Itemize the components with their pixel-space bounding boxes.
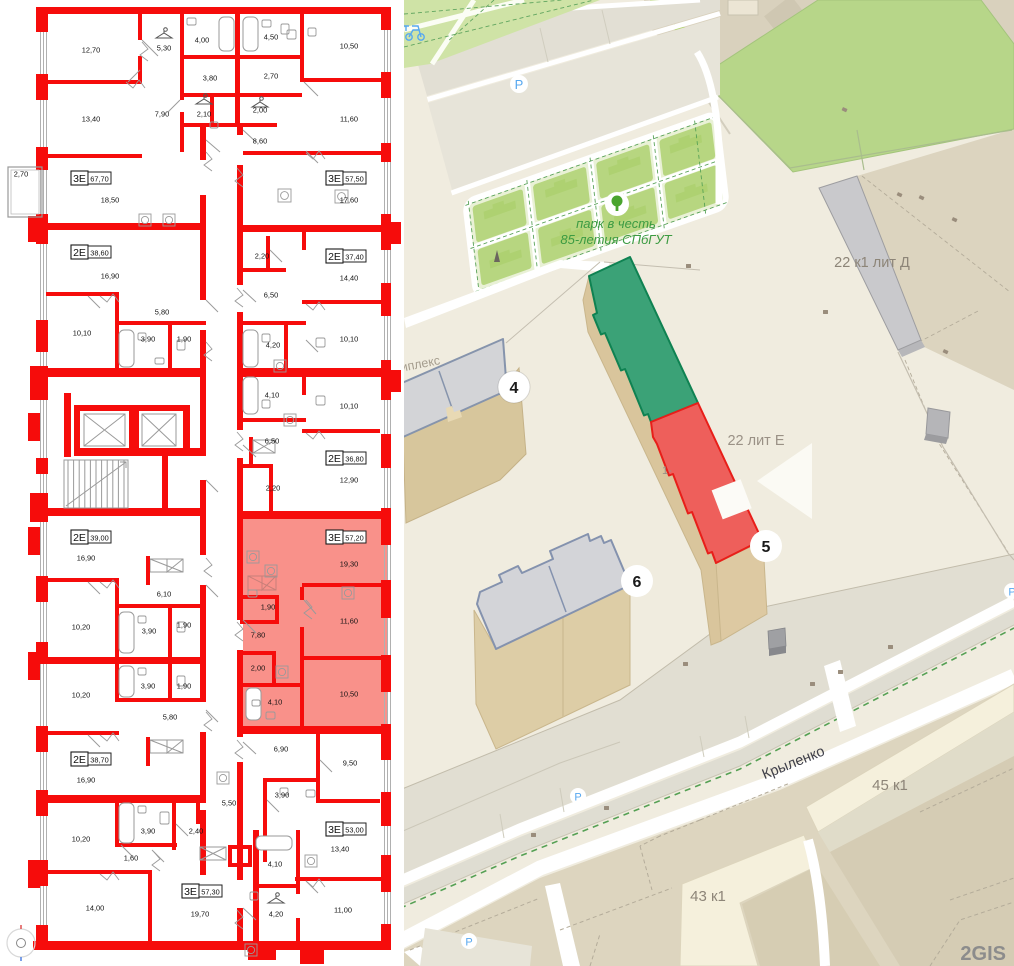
svg-text:10,10: 10,10	[340, 335, 359, 344]
svg-text:4,20: 4,20	[269, 910, 283, 919]
svg-text:11,60: 11,60	[340, 617, 358, 626]
svg-text:3,90: 3,90	[141, 335, 155, 344]
svg-text:12,90: 12,90	[340, 476, 359, 485]
svg-text:2E: 2E	[328, 251, 341, 263]
svg-text:10,20: 10,20	[72, 691, 91, 700]
svg-text:38,60: 38,60	[90, 249, 109, 258]
svg-text:6: 6	[633, 574, 642, 591]
svg-text:3E: 3E	[328, 532, 341, 544]
svg-text:85-летия СПбГУТ: 85-летия СПбГУТ	[560, 232, 672, 247]
svg-text:6,10: 6,10	[157, 590, 171, 599]
svg-text:4: 4	[510, 380, 519, 397]
svg-text:4,20: 4,20	[266, 341, 280, 350]
svg-text:57,20: 57,20	[345, 534, 364, 543]
svg-text:3,90: 3,90	[141, 827, 155, 836]
svg-text:13,40: 13,40	[82, 115, 101, 124]
svg-text:14,40: 14,40	[340, 274, 359, 283]
svg-text:10,50: 10,50	[340, 690, 359, 699]
svg-text:2E: 2E	[328, 453, 341, 465]
svg-text:17,60: 17,60	[340, 196, 359, 205]
svg-text:9,50: 9,50	[343, 759, 357, 768]
svg-text:3,90: 3,90	[142, 627, 156, 636]
svg-text:1,90: 1,90	[177, 335, 191, 344]
svg-text:2,70: 2,70	[14, 170, 28, 179]
svg-text:3,80: 3,80	[203, 74, 217, 83]
svg-text:5,80: 5,80	[163, 713, 177, 722]
svg-text:1,90: 1,90	[177, 621, 191, 630]
svg-text:4,10: 4,10	[268, 860, 282, 869]
svg-text:10,20: 10,20	[72, 623, 91, 632]
svg-text:6,90: 6,90	[274, 745, 288, 754]
svg-text:43 к1: 43 к1	[690, 888, 726, 905]
svg-text:57,30: 57,30	[201, 888, 220, 897]
svg-text:45 к1: 45 к1	[872, 777, 908, 794]
svg-text:19,30: 19,30	[340, 560, 359, 569]
svg-text:8,60: 8,60	[253, 137, 267, 146]
svg-text:5: 5	[762, 539, 771, 556]
svg-text:5,80: 5,80	[155, 308, 169, 317]
svg-text:16,90: 16,90	[101, 272, 120, 281]
svg-text:11,00: 11,00	[334, 906, 352, 915]
svg-text:3,90: 3,90	[275, 791, 289, 800]
svg-text:2E: 2E	[73, 247, 86, 259]
svg-text:1,90: 1,90	[177, 682, 191, 691]
svg-text:57,50: 57,50	[345, 175, 364, 184]
svg-text:1,90: 1,90	[261, 603, 275, 612]
svg-text:18,50: 18,50	[101, 196, 120, 205]
svg-text:2GIS: 2GIS	[960, 943, 1006, 965]
svg-text:2,20: 2,20	[266, 484, 280, 493]
svg-text:P: P	[1008, 587, 1014, 599]
svg-text:37,40: 37,40	[345, 253, 364, 262]
svg-text:22 к1 лит Д: 22 к1 лит Д	[834, 255, 910, 271]
svg-text:16,90: 16,90	[77, 554, 96, 563]
svg-text:2,00: 2,00	[251, 664, 265, 673]
svg-text:6,50: 6,50	[264, 291, 278, 300]
svg-text:P: P	[465, 937, 472, 949]
svg-text:4,00: 4,00	[195, 36, 209, 45]
svg-text:парк в честь: парк в честь	[576, 216, 656, 231]
svg-text:36,80: 36,80	[345, 455, 364, 464]
svg-text:5,30: 5,30	[157, 44, 171, 53]
svg-text:2,10: 2,10	[197, 110, 211, 119]
svg-text:1,60: 1,60	[124, 854, 138, 863]
svg-text:6,50: 6,50	[265, 437, 279, 446]
svg-text:14,00: 14,00	[86, 904, 105, 913]
svg-text:2E: 2E	[73, 532, 86, 544]
svg-text:3E: 3E	[73, 173, 86, 185]
svg-text:2,00: 2,00	[253, 106, 267, 115]
svg-text:3E: 3E	[328, 824, 341, 836]
svg-text:2,20: 2,20	[255, 252, 269, 261]
svg-text:7,80: 7,80	[251, 631, 265, 640]
svg-text:67,70: 67,70	[90, 175, 109, 184]
svg-text:19,70: 19,70	[191, 910, 210, 919]
svg-text:38,70: 38,70	[90, 756, 109, 765]
svg-text:P: P	[574, 792, 581, 804]
svg-text:5,50: 5,50	[222, 799, 236, 808]
svg-text:1-: 1-	[662, 465, 672, 477]
svg-text:11,60: 11,60	[340, 115, 358, 124]
svg-text:10,50: 10,50	[340, 42, 359, 51]
svg-text:10,10: 10,10	[340, 402, 359, 411]
svg-text:53,00: 53,00	[345, 826, 364, 835]
svg-text:3E: 3E	[184, 886, 197, 898]
svg-text:39,00: 39,00	[90, 534, 109, 543]
svg-text:12,70: 12,70	[82, 46, 101, 55]
svg-text:2,70: 2,70	[264, 72, 278, 81]
svg-text:3E: 3E	[328, 173, 341, 185]
svg-text:3,90: 3,90	[141, 682, 155, 691]
svg-text:2E: 2E	[73, 754, 86, 766]
svg-text:2,40: 2,40	[189, 827, 203, 836]
svg-text:22 лит Е: 22 лит Е	[727, 433, 784, 449]
svg-text:10,10: 10,10	[73, 329, 92, 338]
svg-text:13,40: 13,40	[331, 845, 350, 854]
svg-text:4,50: 4,50	[264, 33, 278, 42]
svg-text:7,90: 7,90	[155, 110, 169, 119]
svg-text:10,20: 10,20	[72, 835, 91, 844]
svg-text:4,10: 4,10	[265, 391, 279, 400]
svg-text:P: P	[515, 77, 524, 92]
svg-text:16,90: 16,90	[77, 776, 96, 785]
svg-text:4,10: 4,10	[268, 698, 282, 707]
